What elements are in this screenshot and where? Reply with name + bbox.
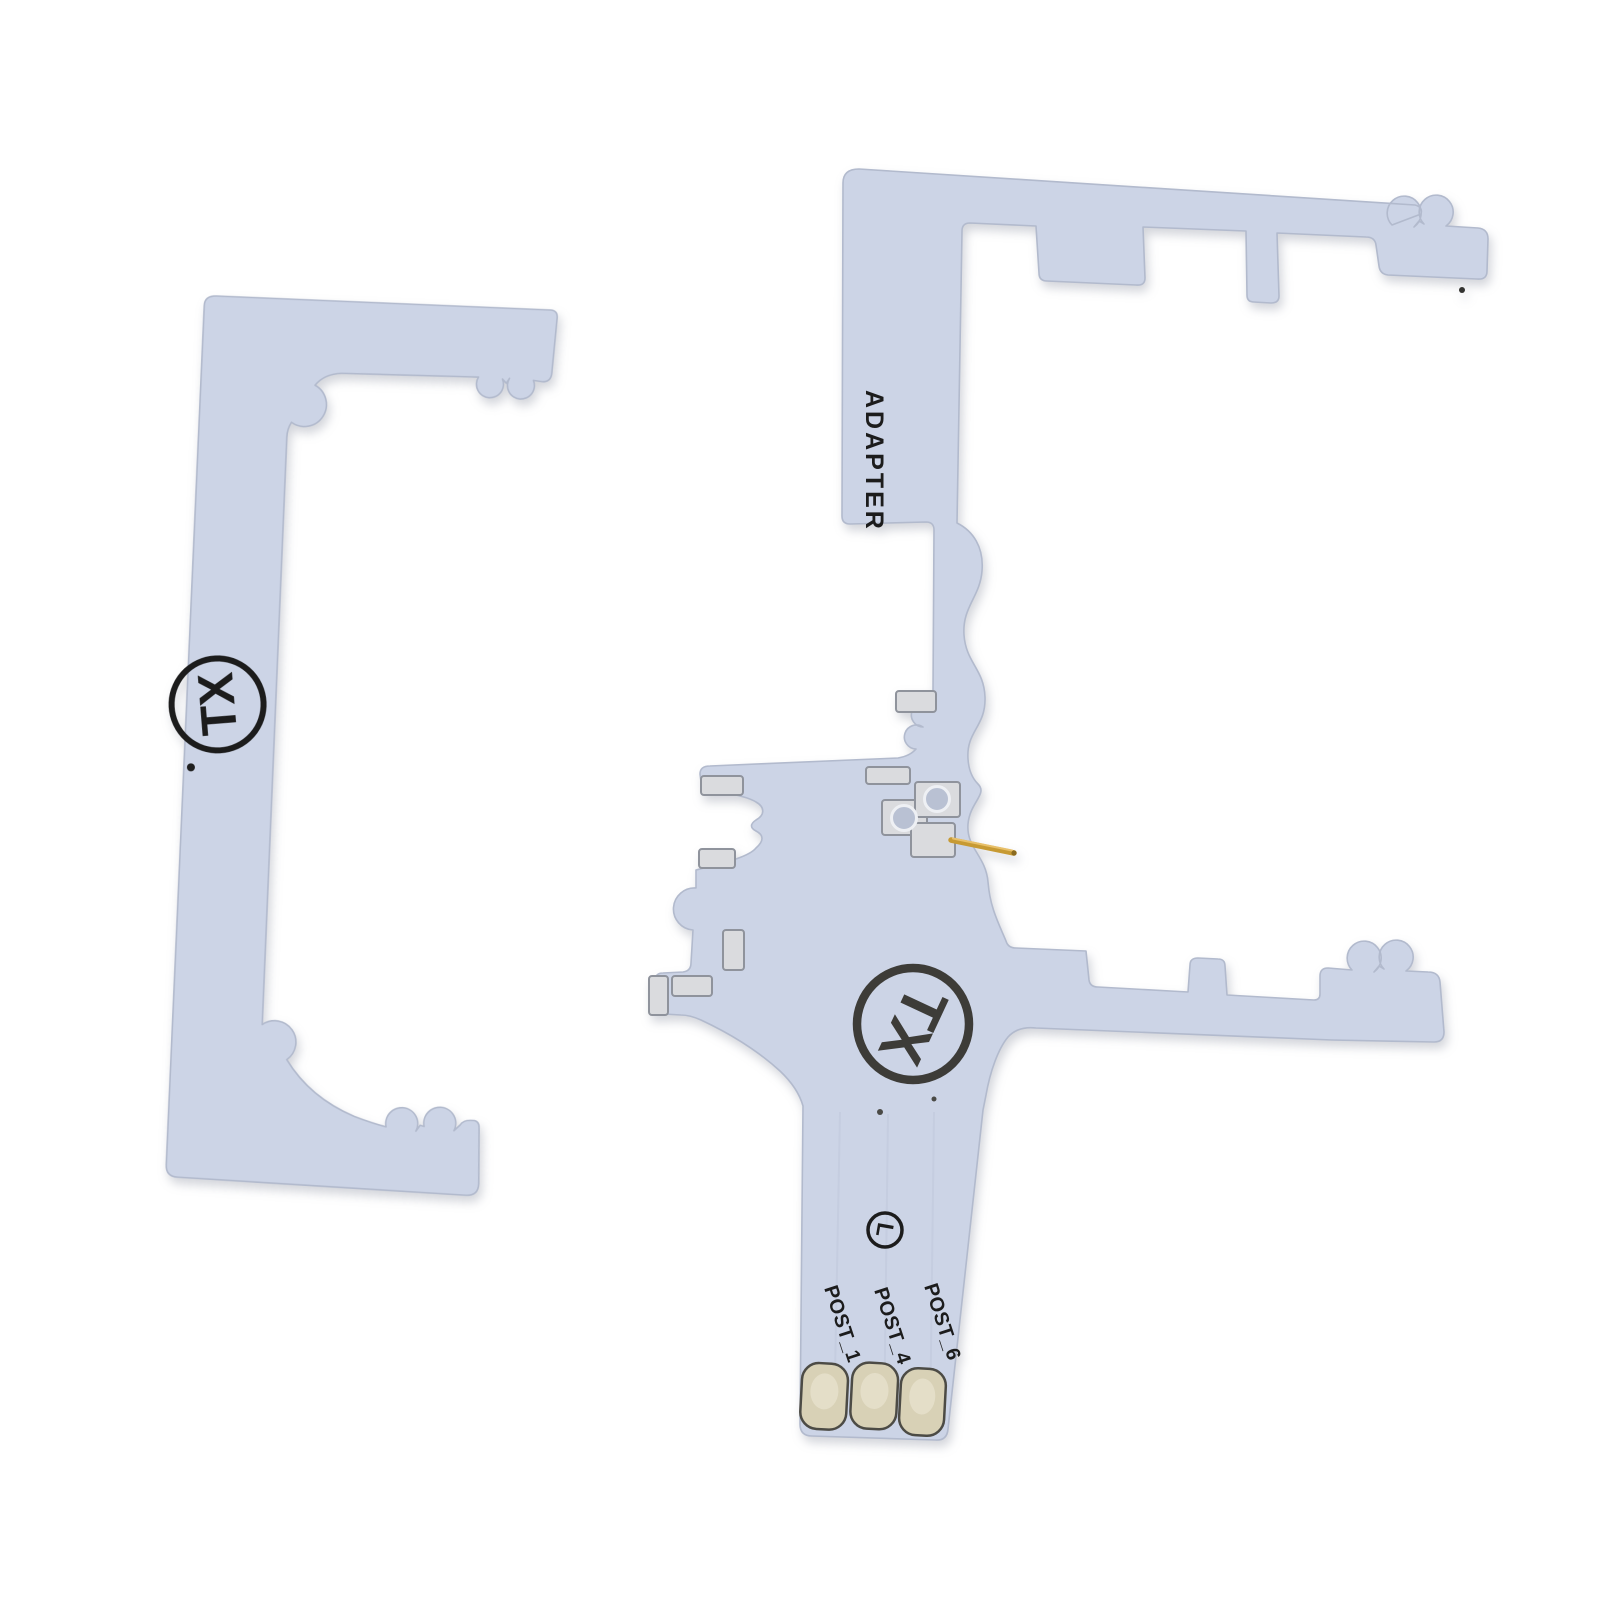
solder-pad [699,849,735,868]
ink-speck [1459,287,1465,293]
via-hole [925,787,950,812]
gold-pin-tip [1011,850,1016,855]
solder-pad [649,976,668,1015]
contact-pads [799,1359,946,1436]
solder-pad [896,691,936,712]
product-photo: TX ADAPTER [0,0,1601,1601]
ink-speck [932,1097,937,1102]
via-hole [892,806,917,831]
solder-pad [723,930,744,970]
solder-pad [866,767,910,784]
photo-canvas: TX ADAPTER [0,0,1601,1601]
solder-pad [701,776,743,795]
adapter-label: ADAPTER [860,390,888,532]
solder-pad [672,976,712,996]
ink-speck [877,1109,883,1115]
tx-logo-text-left: TX [187,671,248,738]
